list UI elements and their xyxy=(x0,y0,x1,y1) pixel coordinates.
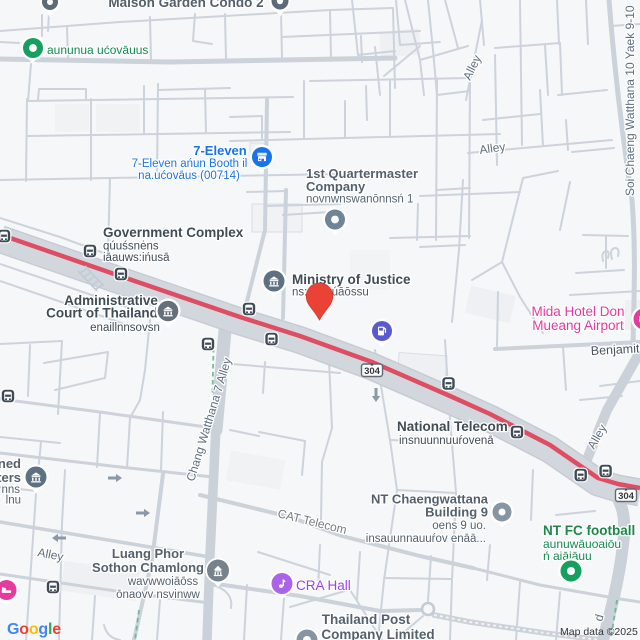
svg-text:lnu: lnu xyxy=(6,495,21,507)
svg-text:304: 304 xyxy=(618,491,635,502)
svg-text:Thailand Post: Thailand Post xyxy=(322,612,411,627)
svg-text:aununua ućovāuus: aununua ućovāuus xyxy=(47,43,148,57)
svg-text:Sothon Chamlong: Sothon Chamlong xyxy=(92,560,204,575)
svg-text:Luang Phor: Luang Phor xyxy=(112,546,184,561)
svg-text:304: 304 xyxy=(364,366,381,377)
svg-text:Building 9: Building 9 xyxy=(425,505,488,520)
svg-text:Ministry of Justice: Ministry of Justice xyxy=(292,272,411,287)
svg-text:7-Eleven ańun Booth il: 7-Eleven ańun Booth il xyxy=(132,158,248,170)
svg-text:wavwwoiāōss: wavwwoiāōss xyxy=(127,576,199,588)
svg-text:ned: ned xyxy=(0,456,21,471)
svg-text:qúuśsnėns: qúuśsnėns xyxy=(103,241,159,253)
svg-text:National Telecom: National Telecom xyxy=(397,419,508,434)
svg-text:Benjamitra: Benjamitra xyxy=(590,341,640,358)
svg-text:Google: Google xyxy=(7,621,61,638)
svg-text:Mueang Airport: Mueang Airport xyxy=(532,318,624,333)
svg-text:enaillnnsovsn: enaillnnsovsn xyxy=(90,322,160,334)
svg-text:ters: ters xyxy=(0,470,21,485)
svg-text:iāauws:ińusā: iāauws:ińusā xyxy=(103,252,170,264)
svg-text:Court of Thailand: Court of Thailand xyxy=(46,306,158,321)
svg-text:7-Eleven: 7-Eleven xyxy=(193,143,247,158)
svg-text:insnuunnuuŕovenā: insnuunnuuŕovenā xyxy=(399,435,494,447)
svg-text:CRA Hall: CRA Hall xyxy=(296,578,351,593)
svg-text:na.ućovāus (00714): na.ućovāus (00714) xyxy=(138,170,240,182)
svg-text:Maison Garden Condo 2: Maison Garden Condo 2 xyxy=(108,0,263,10)
svg-text:NT FC football p: NT FC football p xyxy=(543,523,640,538)
svg-text:insauunnauuŕov enāā...: insauunnauuŕov enāā... xyxy=(366,533,486,545)
svg-text:Company Limited: Company Limited xyxy=(321,627,434,640)
svg-text:Map data ©2025: Map data ©2025 xyxy=(560,626,638,638)
svg-text:Mida Hotel Don: Mida Hotel Don xyxy=(531,304,624,319)
svg-text:Government Complex: Government Complex xyxy=(103,225,244,240)
svg-text:ōnaovv nsvinww: ōnaovv nsvinww xyxy=(116,589,200,601)
svg-text:Company: Company xyxy=(306,179,366,194)
svg-text:oens 9 uo.: oens 9 uo. xyxy=(432,520,486,532)
svg-text:novnwnswanōnnsń 1: novnwnswanōnnsń 1 xyxy=(306,194,413,206)
svg-text:Soi Chaeng Watthana 10 Yaek 9-: Soi Chaeng Watthana 10 Yaek 9-10 xyxy=(623,5,637,196)
